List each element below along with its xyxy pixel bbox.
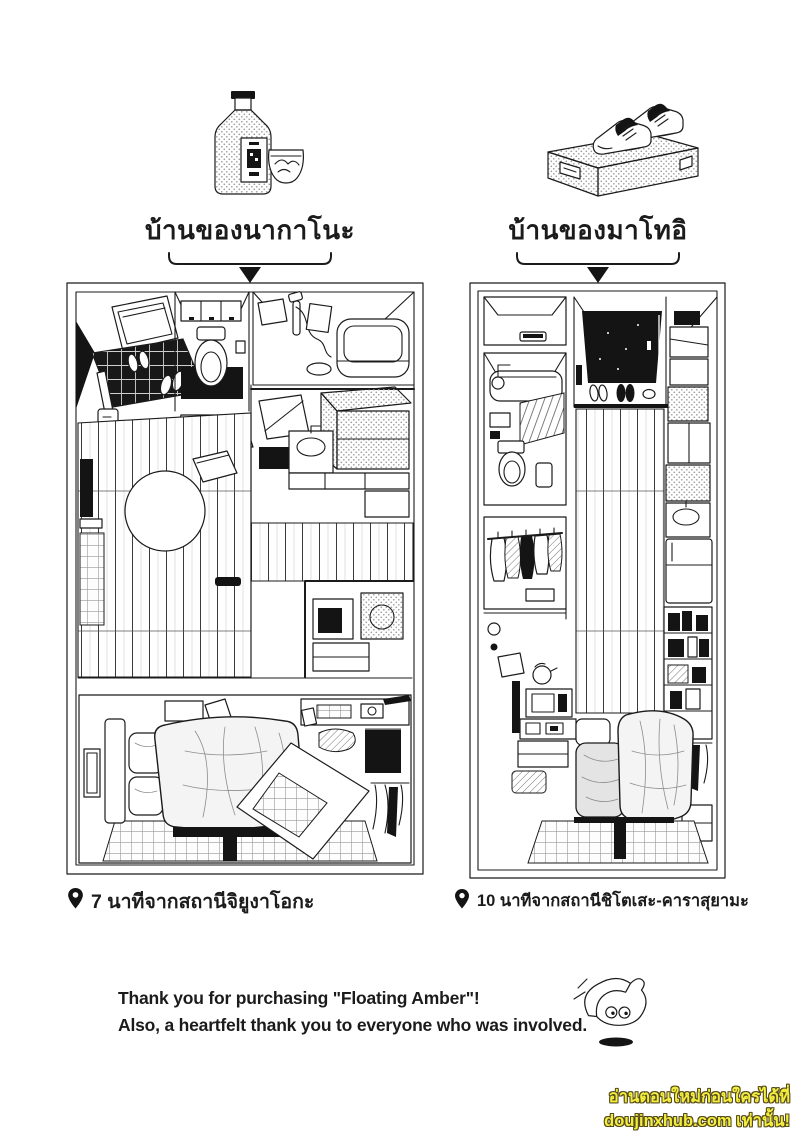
home-label-left: บ้านของนากาโนะ xyxy=(130,210,370,283)
label-bracket xyxy=(513,251,683,266)
map-pin-icon xyxy=(455,889,469,909)
manga-afterword-page: บ้านของนากาโนะ บ้านของมาโทอิ xyxy=(0,0,800,1138)
sneakers-on-shoebox-icon xyxy=(530,90,710,202)
nakano-apartment-floorplan xyxy=(65,281,425,876)
home-label-right: บ้านของมาโทอิ xyxy=(478,210,718,283)
site-watermark: อ่านตอนใหม่ก่อนใครได้ที่ doujinxhub.com … xyxy=(604,1086,790,1134)
afterword-line-1: Thank you for purchasing "Floating Amber… xyxy=(118,985,587,1012)
label-bracket xyxy=(165,251,335,266)
chibi-head-doodle xyxy=(570,972,654,1052)
matoi-apartment-floorplan xyxy=(468,281,727,880)
afterword-line-2: Also, a heartfelt thank you to everyone … xyxy=(118,1012,587,1039)
station-note-right-text: 10 นาทีจากสถานีชิโตเสะ-คาราสุยามะ xyxy=(477,888,749,914)
station-note-left: 7 นาทีจากสถานีจิยูงาโอกะ xyxy=(68,886,314,917)
map-pin-icon xyxy=(68,888,83,909)
watermark-line-1: อ่านตอนใหม่ก่อนใครได้ที่ xyxy=(604,1086,790,1110)
watermark-line-2: doujinxhub.com เท่านั้น! xyxy=(604,1110,790,1134)
whisky-bottle-and-glass-icon xyxy=(183,88,307,206)
station-note-right: 10 นาทีจากสถานีชิโตเสะ-คาราสุยามะ xyxy=(455,888,749,914)
afterword-text: Thank you for purchasing "Floating Amber… xyxy=(118,985,587,1039)
home-label-right-text: บ้านของมาโทอิ xyxy=(509,210,688,251)
station-note-left-text: 7 นาทีจากสถานีจิยูงาโอกะ xyxy=(91,886,314,917)
home-label-left-text: บ้านของนากาโนะ xyxy=(145,210,355,251)
